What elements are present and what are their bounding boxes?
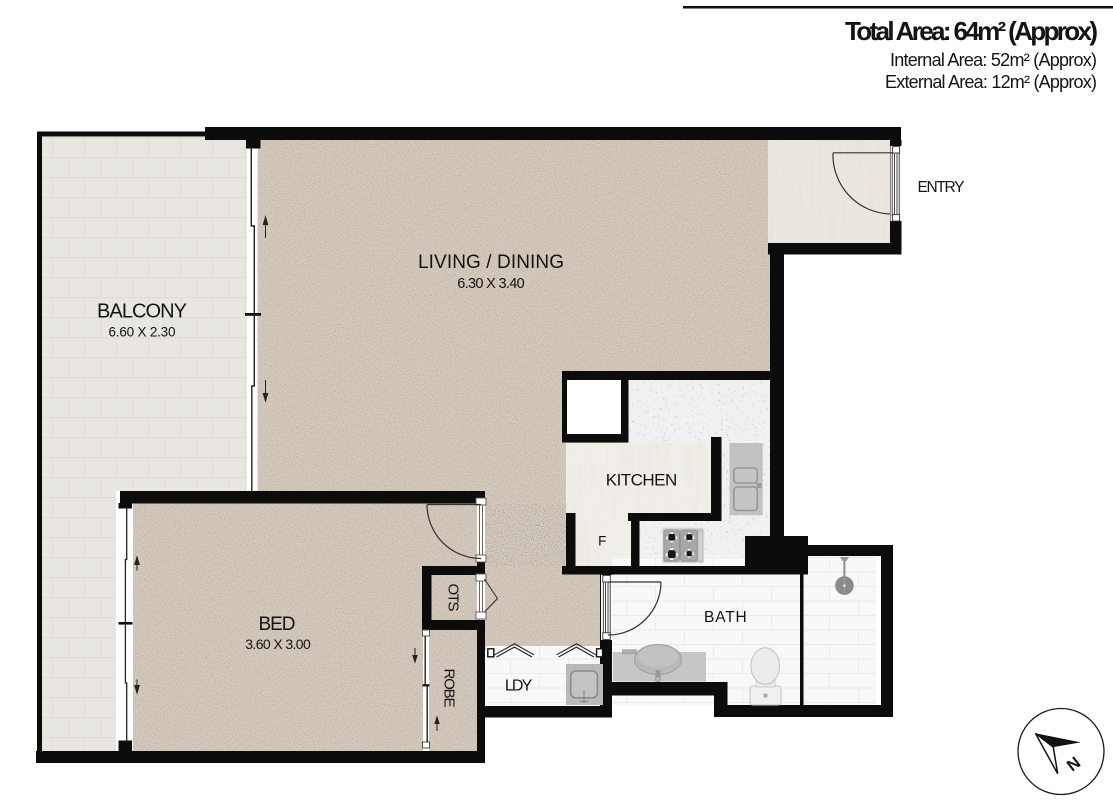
svg-text:ROBE: ROBE (441, 669, 458, 708)
svg-text:OTS: OTS (445, 584, 462, 612)
svg-text:BALCONY: BALCONY (97, 301, 187, 323)
svg-text:BED: BED (259, 614, 296, 635)
svg-text:3.60 X 3.00: 3.60 X 3.00 (245, 636, 311, 652)
svg-text:F: F (598, 533, 606, 548)
svg-text:LIVING / DINING: LIVING / DINING (418, 252, 564, 273)
svg-text:Total Area: 64m² (Approx): Total Area: 64m² (Approx) (845, 16, 1098, 46)
svg-text:BATH: BATH (704, 609, 747, 626)
svg-text:Internal Area: 52m² (Approx): Internal Area: 52m² (Approx) (890, 50, 1097, 70)
svg-text:6.30 X 3.40: 6.30 X 3.40 (457, 276, 525, 292)
svg-text:LDY: LDY (505, 677, 533, 694)
svg-text:ENTRY: ENTRY (918, 179, 965, 196)
svg-text:KITCHEN: KITCHEN (606, 471, 678, 490)
svg-text:6.60 X 2.30: 6.60 X 2.30 (109, 325, 176, 340)
svg-text:External Area: 12m² (Approx): External Area: 12m² (Approx) (885, 72, 1097, 92)
